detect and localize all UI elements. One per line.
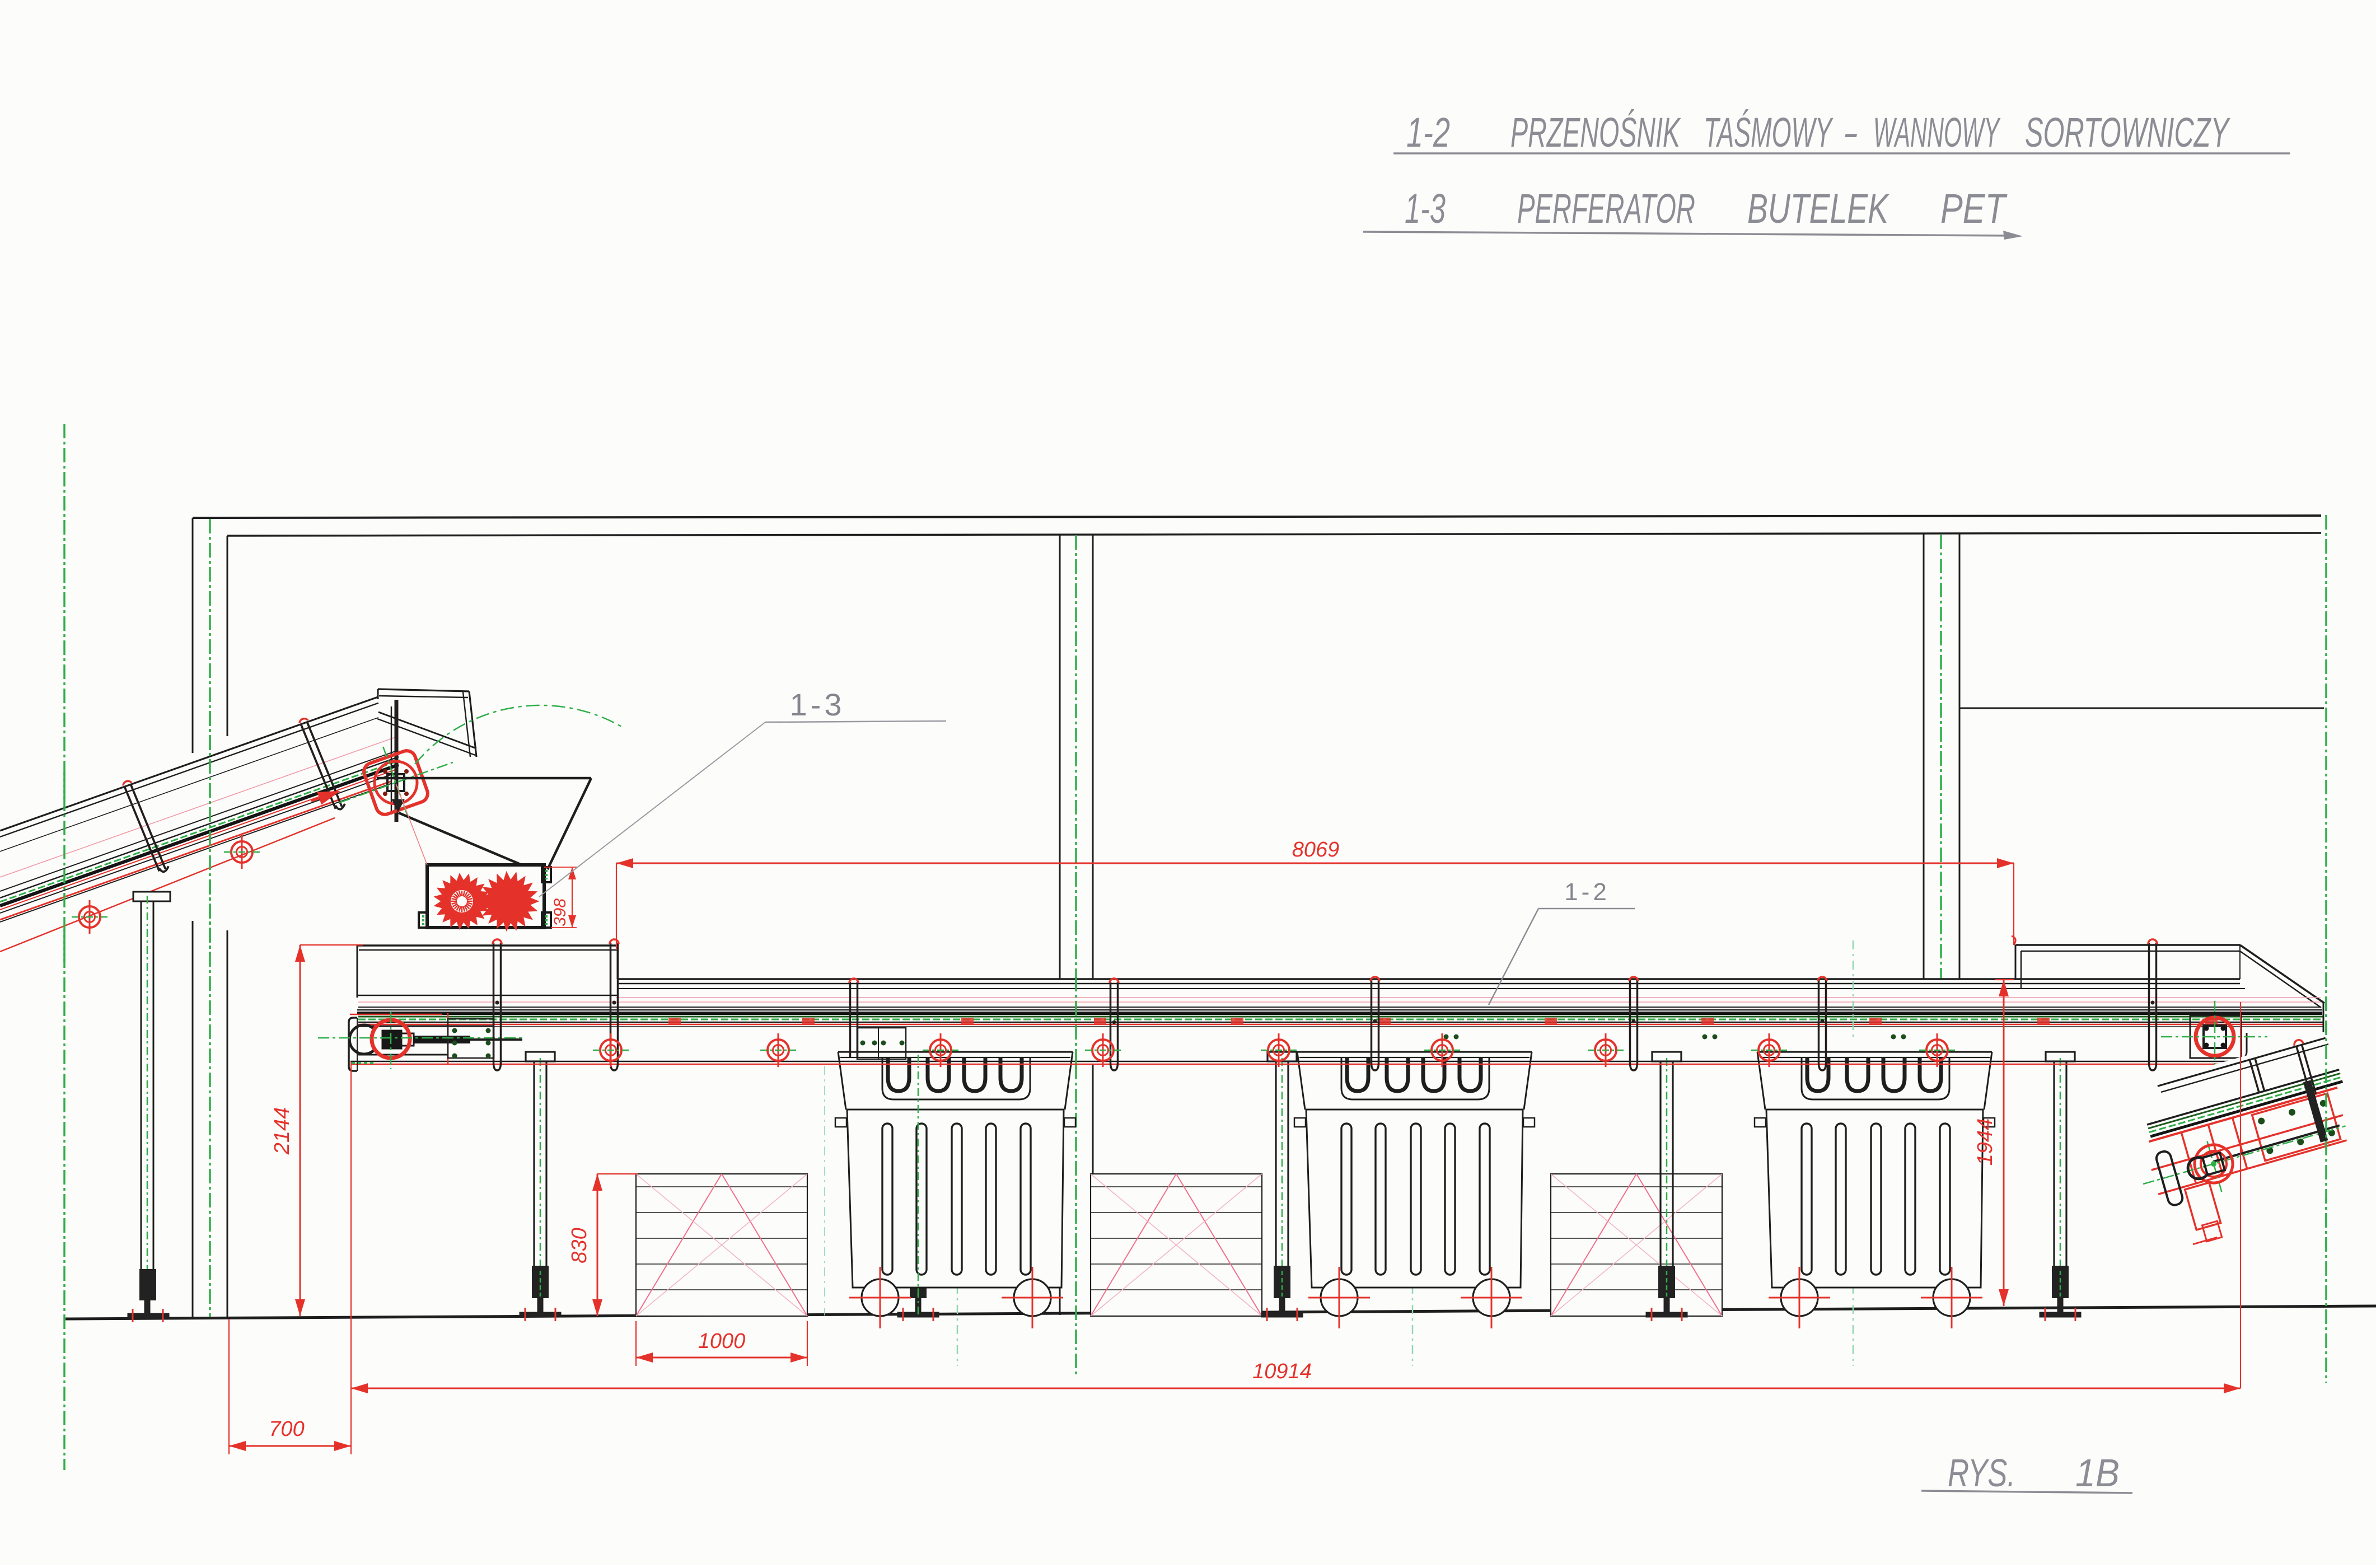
svg-text:PET: PET: [1940, 185, 2008, 232]
svg-text:BUTELEK: BUTELEK: [1747, 185, 1890, 232]
svg-text:1B: 1B: [2075, 1451, 2120, 1495]
svg-text:1944: 1944: [1973, 1118, 1997, 1166]
svg-text:830: 830: [568, 1228, 591, 1263]
svg-text:1-3: 1-3: [790, 687, 845, 722]
svg-text:RYS.: RYS.: [1948, 1451, 2015, 1495]
svg-text:PERFERATOR: PERFERATOR: [1517, 185, 1695, 232]
svg-text:398: 398: [551, 898, 569, 926]
svg-text:8069: 8069: [1292, 838, 1340, 862]
svg-text:1000: 1000: [698, 1330, 746, 1353]
svg-text:10914: 10914: [1252, 1360, 1312, 1383]
svg-text:700: 700: [269, 1417, 304, 1441]
svg-text:PRZENOŚNIK: PRZENOŚNIK: [1510, 109, 1681, 156]
svg-text:1-3: 1-3: [1405, 185, 1446, 232]
svg-text:1-2: 1-2: [1564, 878, 1610, 906]
svg-text:2144: 2144: [270, 1107, 294, 1155]
svg-text:-: -: [1842, 109, 1858, 156]
svg-text:WANNOWY: WANNOWY: [1873, 109, 2001, 156]
svg-text:SORTOWNICZY: SORTOWNICZY: [2025, 109, 2230, 156]
svg-text:1-2: 1-2: [1406, 109, 1450, 156]
svg-text:TAŚMOWY: TAŚMOWY: [1704, 109, 1834, 156]
